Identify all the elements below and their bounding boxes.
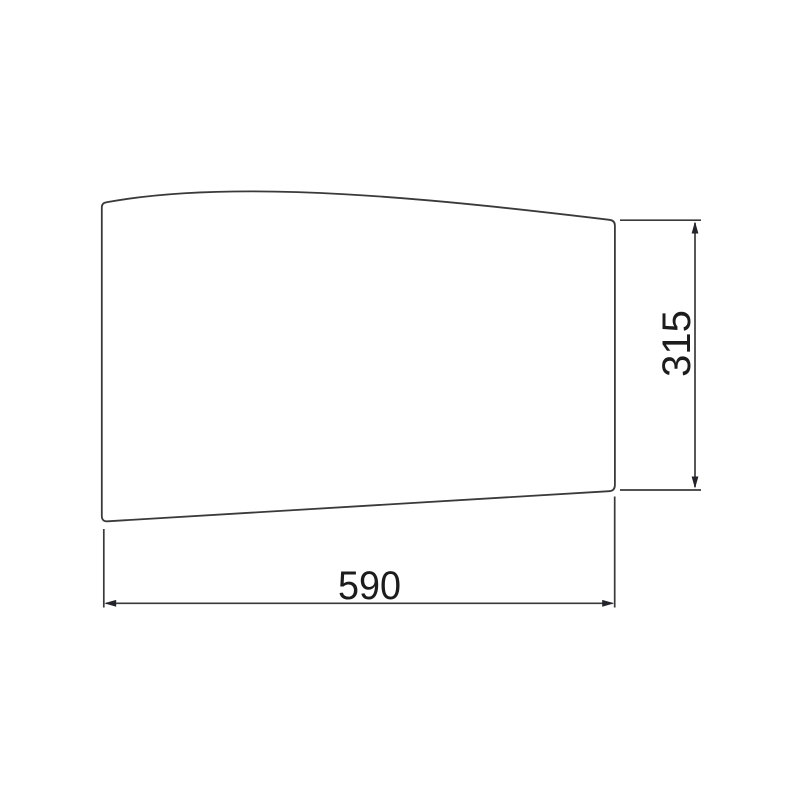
svg-text:315: 315 <box>655 310 699 377</box>
svg-text:590: 590 <box>338 564 401 608</box>
